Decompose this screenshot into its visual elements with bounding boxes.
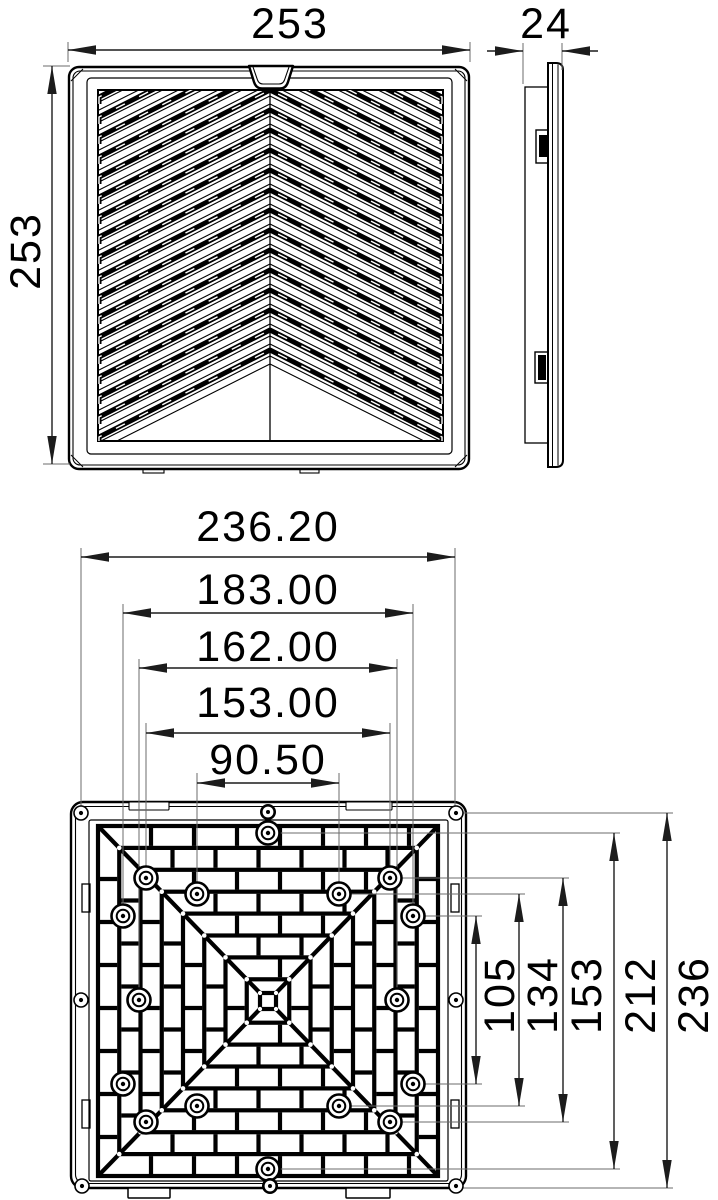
dim-rear-width-5: 90.50 — [209, 736, 327, 784]
dim-rear-width-2: 183.00 — [196, 566, 340, 614]
dim-rear-height-5: 236 — [670, 956, 718, 1034]
dim-rear-width-3: 162.00 — [196, 623, 340, 671]
dim-rear-height-2: 134 — [519, 956, 567, 1034]
side-view — [525, 63, 563, 467]
dim-front-width: 253 — [251, 0, 329, 48]
screw-bosses — [112, 822, 425, 1181]
dim-rear-width-1: 236.20 — [196, 503, 340, 551]
dim-rear-height-4: 212 — [617, 956, 665, 1034]
technical-drawing: 253 253 24 236.20 183.00 162.00 153.00 9… — [0, 0, 718, 1200]
dim-rear-height-3: 153 — [563, 956, 611, 1034]
dim-rear-height-1: 105 — [476, 956, 524, 1034]
latch-notch — [249, 66, 293, 89]
front-view — [69, 10, 469, 473]
dim-side-depth: 24 — [520, 0, 572, 48]
rear-view — [71, 548, 673, 1198]
drawing-page: 253 253 24 236.20 183.00 162.00 153.00 9… — [0, 0, 718, 1200]
dim-rear-width-4: 153.00 — [196, 679, 340, 727]
dim-front-height: 253 — [2, 212, 50, 290]
